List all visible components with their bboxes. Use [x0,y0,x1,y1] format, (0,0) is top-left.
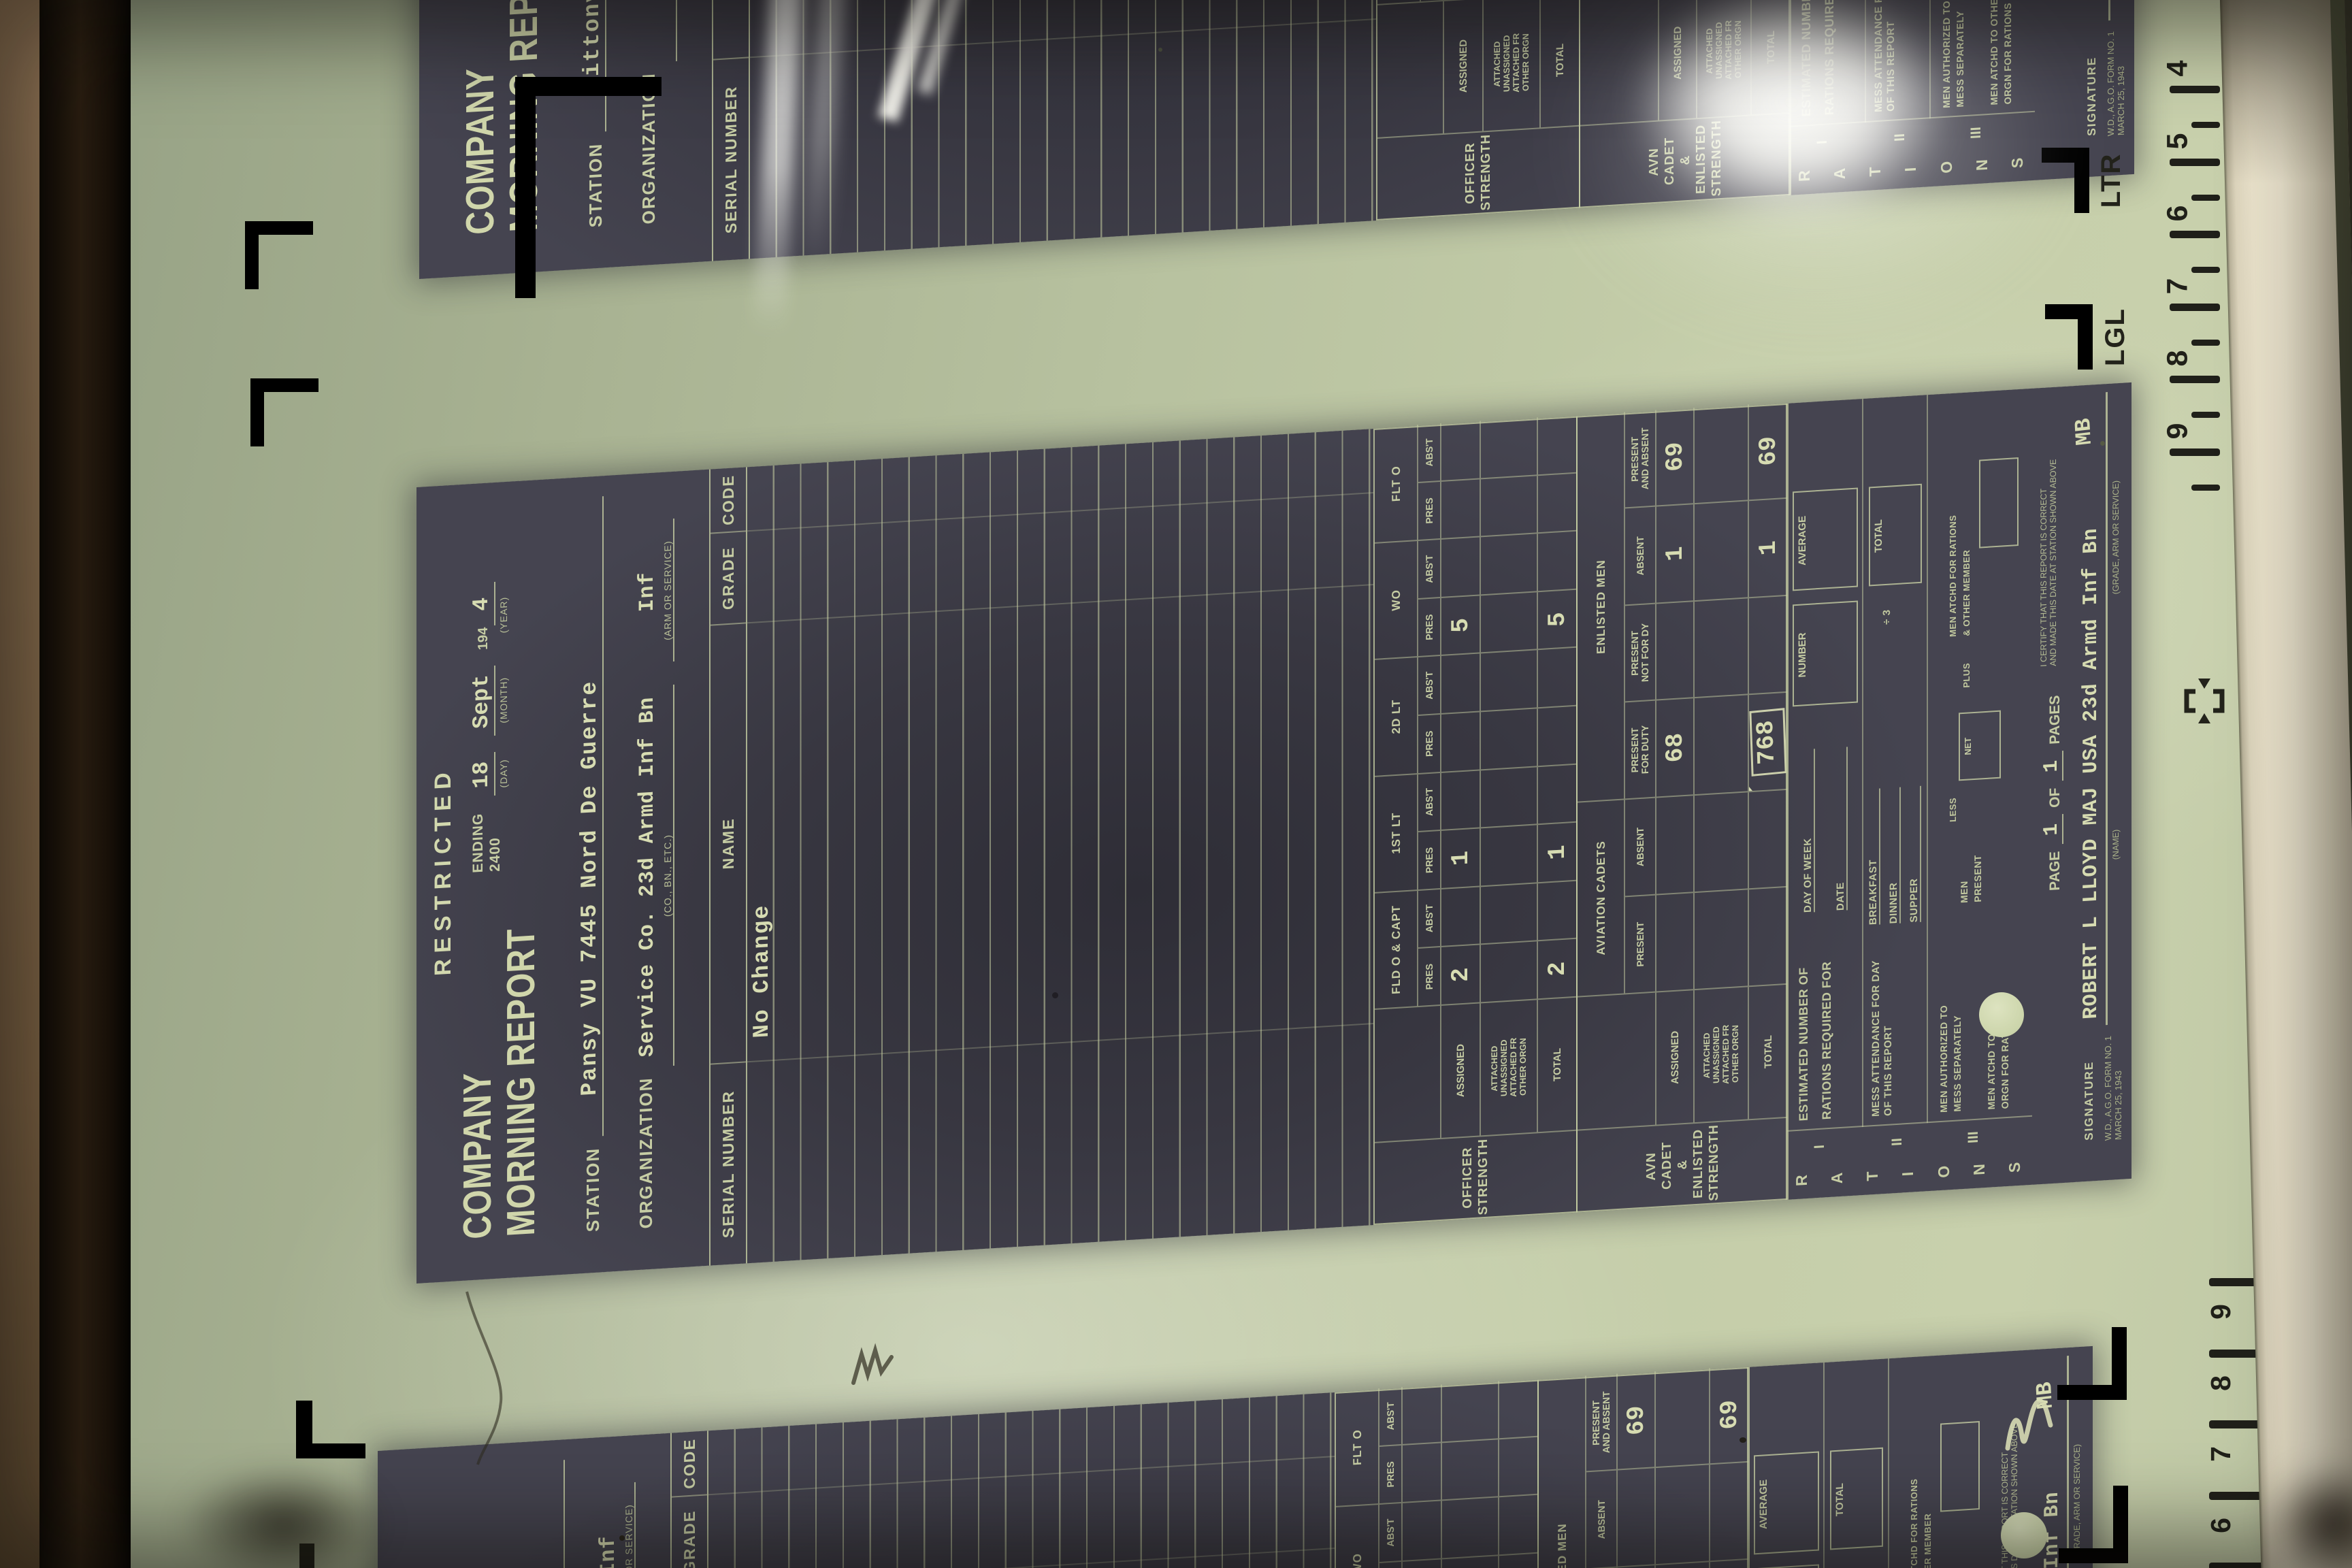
frame-bracket-ltr [2042,148,2089,213]
ruler-unit: 5 [2144,115,2220,188]
ruler-scale-top: 4 5 6 7 8 9 [2144,42,2220,477]
bottom-right-shadow [2246,1443,2352,1568]
ruler-tick-major [2170,448,2220,456]
ruler-number: 8 [2205,1375,2237,1391]
photo-of-microfilm-reader: RESTRICTED COMPANY MORNING REPORT ENDING… [0,0,2352,1568]
frame-bracket-lgl [2045,304,2093,370]
ruler-number: 7 [2205,1446,2237,1462]
ruler-tick-major [2170,376,2220,383]
frame-bracket-bottom-right-2 [2059,1486,2128,1563]
dust-speck [619,1535,625,1541]
ruler-tick-major [2170,304,2220,311]
dust-speck [2100,441,2105,446]
ruler-tick-major [2170,231,2220,238]
ruler-number: 7 [2161,278,2194,294]
microfilm-screen: RESTRICTED COMPANY MORNING REPORT ENDING… [131,0,2352,1568]
ruler-tick-major [2170,86,2220,93]
frame-bracket-bottom-left-2 [299,1543,314,1568]
ruler-unit: 9 [2144,405,2220,478]
film-scratches-layer [131,0,2352,1568]
pen-squiggle-dark [853,1350,892,1383]
ruler-number: 9 [2205,1304,2237,1320]
room-shadow-strip [39,0,131,1568]
frame-bracket-top-left-2 [250,378,318,446]
pen-squiggle-light [2008,1401,2051,1448]
frame-bracket-large [515,77,661,298]
frame-bracket-top-left-1 [245,221,313,289]
reader-housing-edge [0,0,39,1568]
ruler-number: 8 [2161,350,2194,367]
ruler-unit: 6 [2144,187,2220,260]
ruler-tick-minor [2191,485,2220,491]
frame-bracket-bottom-left-1 [296,1401,365,1458]
ruler-unit: 4 [2144,42,2220,115]
bezel-guide-rod [2330,0,2352,1568]
ruler-number: 6 [2161,206,2194,222]
dust-speck [1052,992,1058,998]
frame-bracket-bottom-right-1 [2057,1327,2127,1400]
ruler-number: 9 [2161,423,2194,439]
scratch-line [467,1292,501,1465]
dust-speck [1739,1437,1746,1443]
ruler-unit: 8 [2144,332,2220,405]
ruler-number: 4 [2161,61,2194,77]
ruler-tick-major [2170,159,2220,166]
ruler-number: 5 [2161,133,2194,149]
paper-size-label-legal: LGL [2100,304,2130,370]
paper-size-label-letter: LTR [2096,148,2126,213]
ruler-number: 6 [2205,1518,2237,1533]
ruler-unit: 7 [2144,260,2220,333]
dust-speck [1158,48,1162,52]
